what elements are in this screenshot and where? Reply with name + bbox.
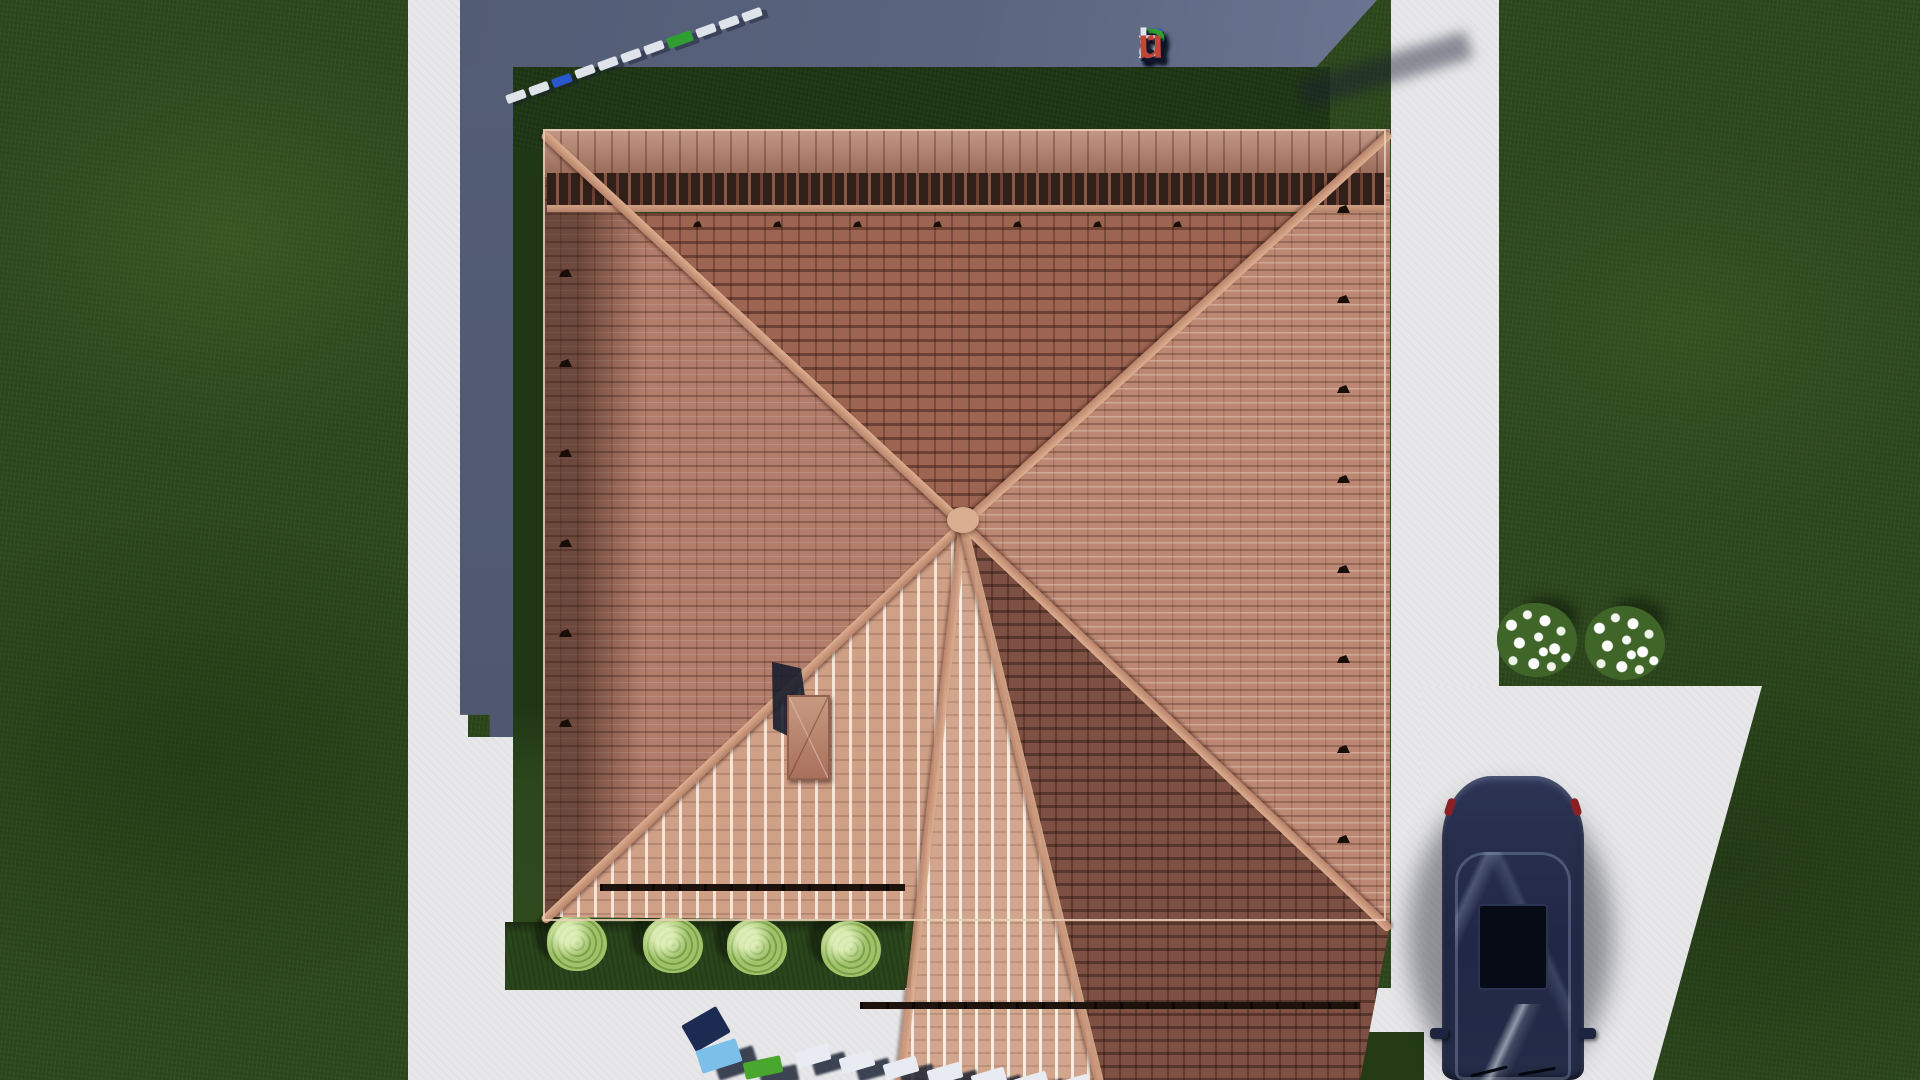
- aerial-render-scene: FixPlans.ru: [0, 0, 1920, 1080]
- chimney: [787, 695, 830, 780]
- building-shadow-left: [460, 67, 513, 737]
- watermark-letter: u: [1137, 20, 1161, 68]
- car-mirror-right: [1578, 1028, 1596, 1039]
- roof-fascia-outline: [543, 129, 1386, 921]
- building-shadow-top: [460, 0, 1377, 67]
- lawn-strip-west: [513, 150, 544, 926]
- flower-shrub: [1497, 603, 1577, 677]
- car-mirror-left: [1430, 1028, 1448, 1039]
- gutter-rail-south: [600, 884, 905, 891]
- car: [1442, 776, 1584, 1080]
- car-sunroof: [1478, 904, 1548, 990]
- car-hood: [1450, 1004, 1576, 1080]
- gutter-rail-wing: [860, 1002, 1360, 1009]
- house-roof: [543, 129, 1390, 1080]
- flower-shrub: [1585, 606, 1665, 680]
